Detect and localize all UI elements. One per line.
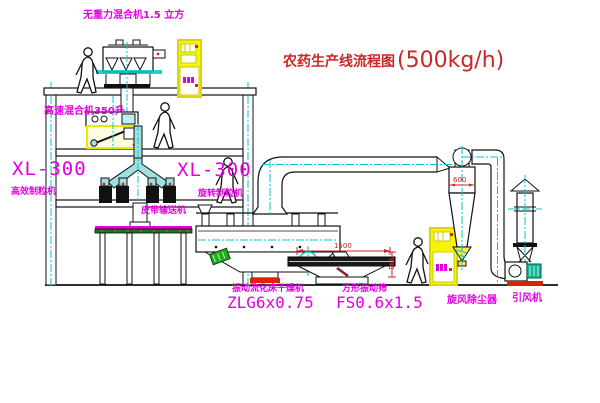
top-slab bbox=[44, 88, 256, 95]
diagram-title-capacity: (500kg/h) bbox=[397, 48, 504, 73]
person-figure bbox=[406, 238, 428, 283]
granulator-left-label: 高效制粒机 bbox=[11, 188, 56, 197]
control-cabinet-ground bbox=[430, 228, 457, 285]
gravity-free-mixer bbox=[96, 40, 165, 116]
screen-height-dimension: 541 bbox=[387, 257, 394, 270]
induced-draft-fan bbox=[505, 262, 543, 286]
person-figure bbox=[76, 48, 98, 93]
main-exhaust-duct bbox=[253, 157, 452, 215]
diagram-title: 农药生产线流程图 (500kg/h) bbox=[283, 48, 504, 73]
control-cabinet-top bbox=[178, 40, 201, 97]
granulator-right-label: 旋转制粒机 bbox=[198, 190, 243, 199]
belt-conveyor-label: 皮带输送机 bbox=[141, 207, 186, 216]
person-figure bbox=[153, 103, 175, 148]
xl300-left-label: XL-300 bbox=[12, 160, 87, 179]
dryer-model-label: ZLG6x0.75 bbox=[227, 295, 314, 311]
cyclone-dimension: 600 bbox=[453, 177, 466, 184]
gravity-mixer-label: 无重力混合机1.5 立方 bbox=[83, 11, 184, 21]
diagram-title-cn: 农药生产线流程图 bbox=[283, 51, 395, 71]
second-slab bbox=[56, 149, 243, 156]
screen-length-dimension: 1500 bbox=[334, 243, 352, 250]
screen-model-label: FS0.6x1.5 bbox=[336, 295, 423, 311]
flow-diagram-canvas: 无重力混合机1.5 立方 高速混合机350升 XL-300 高效制粒机 XL-3… bbox=[0, 0, 600, 403]
belt-conveyor bbox=[95, 226, 192, 284]
fan-base bbox=[507, 281, 543, 286]
cyclone-label: 旋风除尘器 bbox=[447, 296, 497, 306]
high-speed-mixer-label: 高速混合机350升 bbox=[44, 107, 125, 117]
fan-label: 引风机 bbox=[512, 294, 542, 304]
xl300-right-label: XL-300 bbox=[177, 161, 252, 180]
